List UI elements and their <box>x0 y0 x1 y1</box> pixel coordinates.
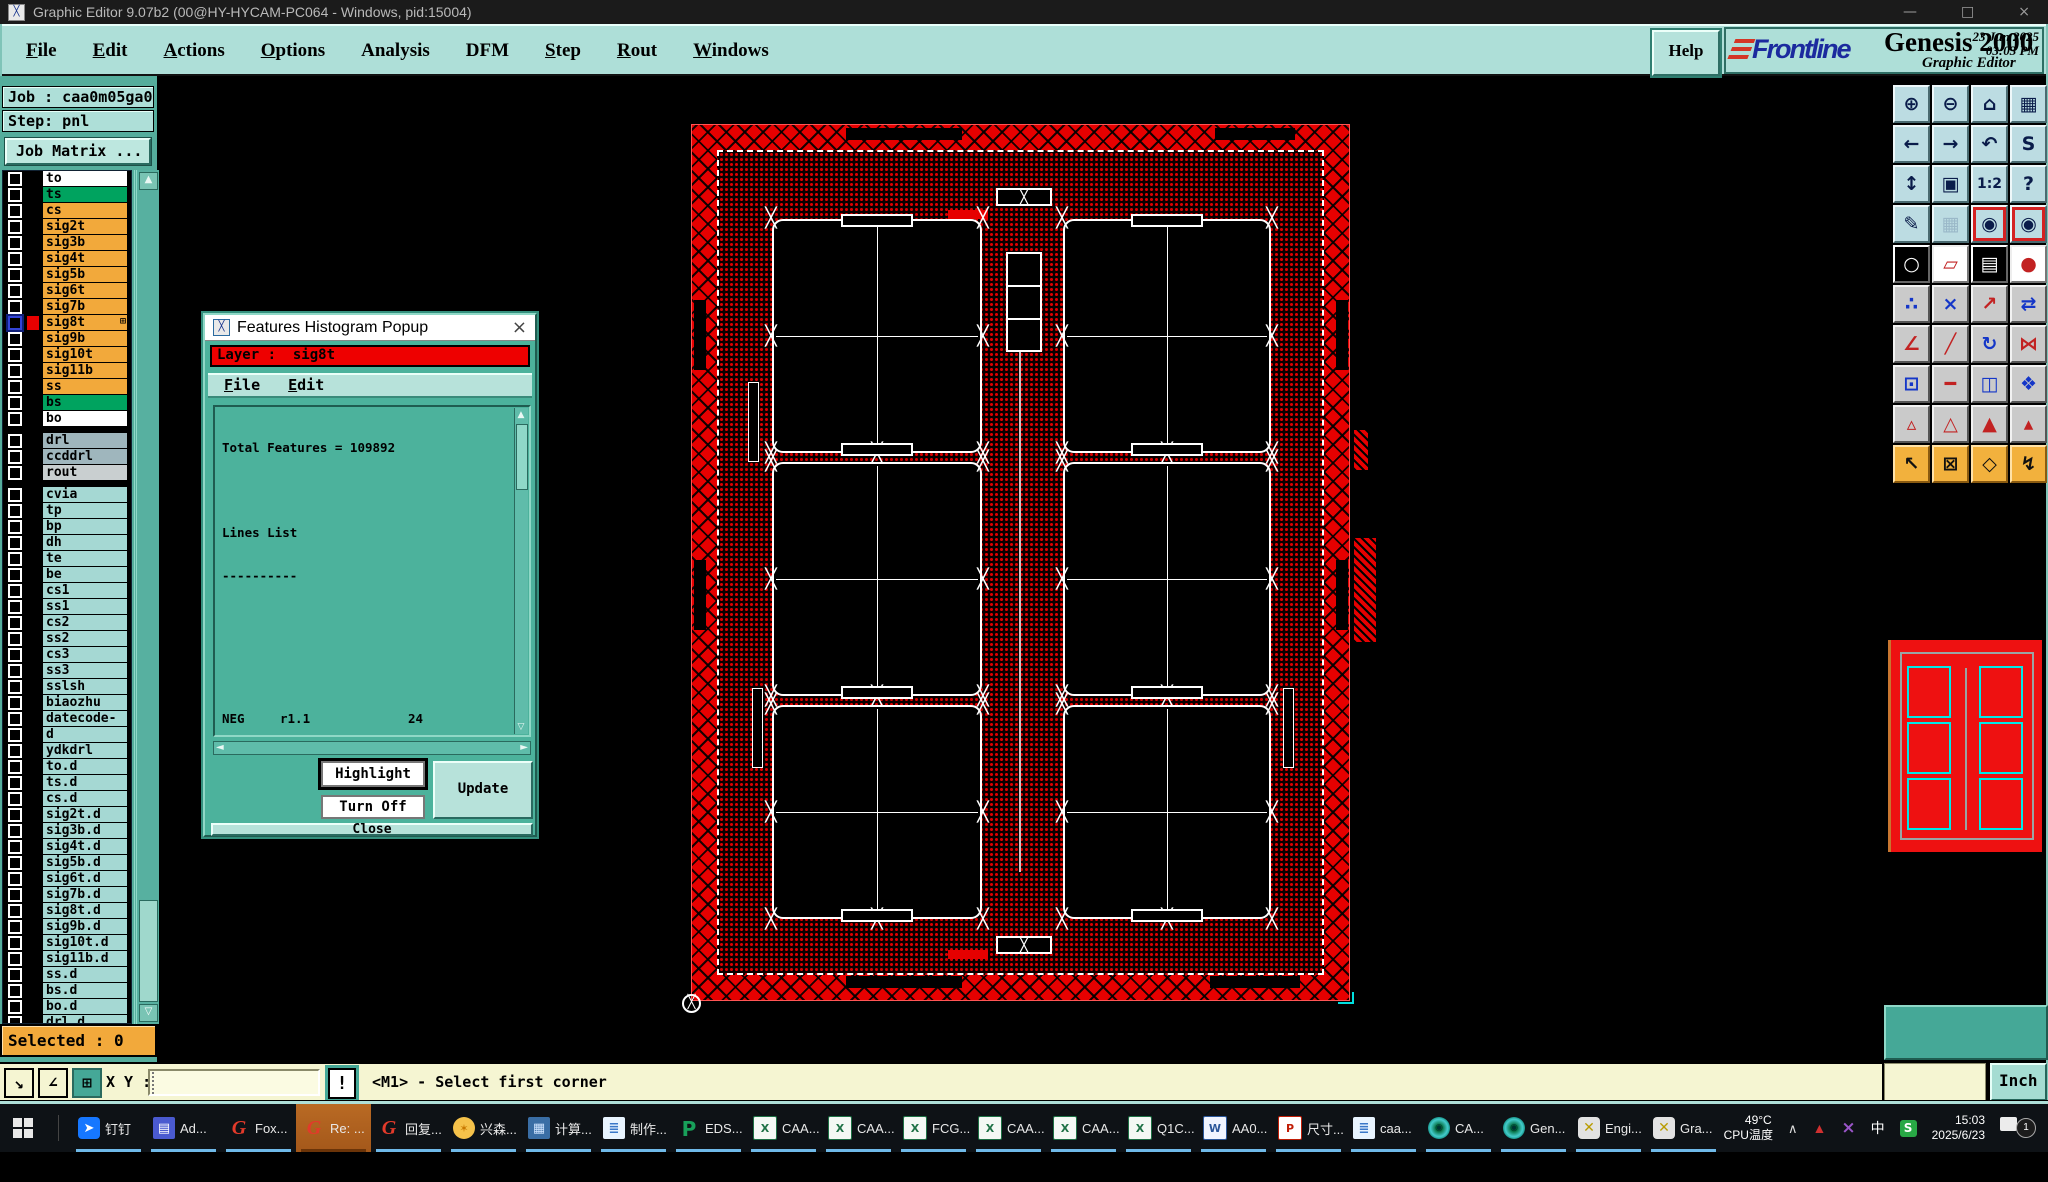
layer-row[interactable]: d <box>3 727 131 742</box>
taskbar-item-label: Gen... <box>1530 1121 1565 1136</box>
select-arrow-button[interactable]: ↖ <box>1893 445 1930 483</box>
layer-name[interactable]: ts.d <box>43 775 127 790</box>
taskbar-item-engineering[interactable]: ✕ Engi... <box>1571 1104 1646 1152</box>
layer-name[interactable]: sig2t.d <box>43 807 127 822</box>
layer-name[interactable]: sig2t <box>43 219 127 234</box>
layer-color-swatch <box>27 504 39 518</box>
grid-toggle-button[interactable]: ▦ <box>1932 205 1969 243</box>
taskbar-item-label: 回复... <box>405 1119 442 1138</box>
layer-visibility-checkbox[interactable] <box>8 648 22 662</box>
copy-shape-button[interactable]: ⊡ <box>1893 365 1930 403</box>
layer-name[interactable]: ss <box>43 379 127 394</box>
panel-block-group[interactable]: ╳╳╳╳╳╳╳ <box>1063 219 1271 453</box>
origin-target-marker: ╳ <box>682 994 701 1013</box>
layer-name[interactable]: bs <box>43 395 127 410</box>
layer-row[interactable]: ss2 <box>3 631 131 646</box>
layer-name[interactable]: sig9b.d <box>43 919 127 934</box>
taskbar-item-graphic-editor[interactable]: ✕ Gra... <box>1646 1104 1721 1152</box>
layer-row[interactable]: sig2t <box>3 219 131 234</box>
taskbar-item-chicun-pdf[interactable]: P 尺寸... <box>1271 1104 1346 1152</box>
layer-row[interactable]: sig9b <box>3 331 131 346</box>
layer-visibility-checkbox[interactable] <box>8 888 22 902</box>
layer-row[interactable]: rout <box>3 465 131 480</box>
layer-name[interactable]: ss2 <box>43 631 127 646</box>
layer-name[interactable]: drl <box>43 433 127 448</box>
layer-name[interactable]: sig11b <box>43 363 127 378</box>
layer-row[interactable]: sig10t <box>3 347 131 362</box>
layer-visibility-checkbox[interactable] <box>8 1016 22 1025</box>
layer-row[interactable]: cs2 <box>3 615 131 630</box>
layer-visibility-checkbox[interactable] <box>8 920 22 934</box>
layer-row[interactable]: bs.d <box>3 983 131 998</box>
layer-name[interactable]: sig3b.d <box>43 823 127 838</box>
layer-visibility-checkbox[interactable] <box>8 568 22 582</box>
tools-palette-button[interactable]: ✎ <box>1893 205 1930 243</box>
status-bar: ↘ ∠ ⊞ X Y : ! <M1> - Select first corner <box>0 1062 1882 1102</box>
point-swap-button[interactable]: ⇄ <box>2010 285 2047 323</box>
zoom-in-button[interactable]: ⊕ <box>1893 85 1930 123</box>
layer-visibility-checkbox[interactable] <box>8 792 22 806</box>
layer-color-swatch <box>27 968 39 982</box>
ime-indicator[interactable]: 中 <box>1871 1121 1885 1136</box>
clear-marks-button[interactable]: × <box>1932 285 1969 323</box>
layer-color-swatch <box>27 664 39 678</box>
taskbar-item-q1c-xls[interactable]: X Q1C... <box>1121 1104 1196 1152</box>
layer-row[interactable]: sig4t.d <box>3 839 131 854</box>
layer-row[interactable]: sig11b.d <box>3 951 131 966</box>
layer-row[interactable]: sig5b.d <box>3 855 131 870</box>
pan-right-button[interactable]: → <box>1932 125 1969 163</box>
layer-name[interactable]: to <box>43 171 127 186</box>
select-window-button[interactable]: ⊠ <box>1932 445 1969 483</box>
taskbar-item-label: caa... <box>1380 1121 1412 1136</box>
overview-center-line <box>1965 668 1967 830</box>
dimension-button[interactable]: ◫ <box>1971 365 2008 403</box>
layer-name[interactable]: sig4t.d <box>43 839 127 854</box>
layer-visibility-checkbox[interactable] <box>8 380 22 394</box>
layer-name[interactable]: ydkdrl <box>43 743 127 758</box>
taskbar-clock[interactable]: 15:032025/6/23 <box>1932 1098 1985 1158</box>
taskbar-item-aa0-doc[interactable]: W AA0... <box>1196 1104 1271 1152</box>
taskbar-item-xingsen[interactable]: ✶ 兴森... <box>446 1104 521 1152</box>
layer-row[interactable]: cs.d <box>3 791 131 806</box>
layer-visibility-checkbox[interactable] <box>8 600 22 614</box>
select-net-button[interactable]: ↯ <box>2010 445 2047 483</box>
triangle-outline-button[interactable]: △ <box>1932 405 1969 443</box>
corner-tick <box>1338 992 1354 1004</box>
pan-left-button[interactable]: ← <box>1893 125 1930 163</box>
layer-sidebar: Job : caa0m05ga0 Step: pnl Job Matrix ..… <box>0 76 158 1064</box>
layer-name[interactable]: to.d <box>43 759 127 774</box>
layer-row[interactable]: ydkdrl <box>3 743 131 758</box>
layer-row[interactable]: cs3 <box>3 647 131 662</box>
layer-row[interactable]: cvia <box>3 487 131 502</box>
panel-block-group[interactable]: ╳╳╳╳╳╳╳ <box>772 462 982 696</box>
layer-row[interactable]: be <box>3 567 131 582</box>
window-xy-button[interactable]: ▦ <box>2010 85 2047 123</box>
taskbar-item-zhizuo[interactable]: ≣ 制作... <box>596 1104 671 1152</box>
layer-visibility-checkbox[interactable] <box>8 904 22 918</box>
overview-map[interactable] <box>1888 640 2042 852</box>
taskbar-items: ➤ 钉钉 ▤ Ad... G Fox... G Re: ... G 回复... <box>71 1104 1721 1152</box>
layer-name[interactable]: cs <box>43 203 127 218</box>
layer-name[interactable]: ss.d <box>43 967 127 982</box>
triangle-filled-button[interactable]: ▲ <box>1971 405 2008 443</box>
histogram-row[interactable]: NEG r1.1 24 <box>222 712 511 726</box>
home-view-button[interactable]: ⌂ <box>1971 85 2008 123</box>
scroll-up-icon[interactable]: ▲ <box>515 408 527 422</box>
layer-visibility-checkbox[interactable] <box>8 760 22 774</box>
segment-button[interactable]: ━ <box>1932 365 1969 403</box>
layer-row[interactable]: drl <box>3 433 131 448</box>
layer-name[interactable]: te <box>43 551 127 566</box>
layer-visibility-checkbox[interactable] <box>8 268 22 282</box>
taskbar-item-label: 计算... <box>555 1119 592 1138</box>
layer-row[interactable]: bs <box>3 395 131 410</box>
layer-row[interactable]: ss3 <box>3 663 131 678</box>
layer-row[interactable]: sig4t <box>3 251 131 266</box>
layer-visibility-checkbox[interactable] <box>8 284 22 298</box>
layer-row[interactable]: sig11b <box>3 363 131 378</box>
notification-center[interactable]: 1 <box>2000 1115 2036 1141</box>
triangle-up-small-button[interactable]: ▵ <box>1893 405 1930 443</box>
overview-block <box>1979 666 2023 718</box>
layer-name[interactable]: sig7b.d <box>43 887 127 902</box>
layer-visibility-checkbox[interactable] <box>8 584 22 598</box>
layer-row[interactable]: bo <box>3 411 131 426</box>
rotate-arc-button[interactable]: ↻ <box>1971 325 2008 363</box>
layer-name[interactable]: ss3 <box>43 663 127 678</box>
taskbar-item-caa-xls-4[interactable]: X CAA... <box>1046 1104 1121 1152</box>
layer-row[interactable]: sig8t <box>3 315 131 330</box>
dialog-menu-item[interactable]: File <box>224 375 260 396</box>
layer-name[interactable]: sig8t.d <box>43 903 127 918</box>
layer-visibility-checkbox[interactable] <box>8 712 22 726</box>
layer-name[interactable]: sig3b <box>43 235 127 250</box>
unit-dropdown[interactable]: Inch <box>1990 1063 2047 1101</box>
layer-visibility-checkbox[interactable] <box>8 236 22 250</box>
layer-visibility-checkbox[interactable] <box>8 220 22 234</box>
layer-name[interactable]: ts <box>43 187 127 202</box>
layer-name[interactable]: sig6t <box>43 283 127 298</box>
taskbar-item-genesis-cd[interactable]: ◉ Gen... <box>1496 1104 1571 1152</box>
layer-color-swatch <box>27 680 39 694</box>
layer-name[interactable]: sig11b.d <box>43 951 127 966</box>
scroll-down-icon[interactable]: ▽ <box>139 1004 158 1022</box>
taskbar-item-ad[interactable]: ▤ Ad... <box>146 1104 221 1152</box>
taskbar-item-dingtalk[interactable]: ➤ 钉钉 <box>71 1104 146 1152</box>
taskbar-item-foxmail[interactable]: G Fox... <box>221 1104 296 1152</box>
layer-name[interactable]: cs3 <box>43 647 127 662</box>
layer-visibility-checkbox[interactable] <box>8 204 22 218</box>
polyline-edit-button[interactable]: ▱ <box>1932 245 1969 283</box>
dialog-vertical-scrollbar[interactable]: ▲ ▽ <box>514 408 528 734</box>
grid-snap-button[interactable]: ⊞ <box>72 1068 102 1098</box>
layer-row[interactable]: ss.d <box>3 967 131 982</box>
tray-s-icon[interactable]: S <box>1900 1120 1917 1137</box>
cpu-temperature: 49°CCPU温度 <box>1724 1098 1773 1158</box>
layer-visibility-checkbox[interactable] <box>8 952 22 966</box>
layer-row[interactable]: drl.d <box>3 1015 131 1024</box>
layer-visibility-checkbox[interactable] <box>8 332 22 346</box>
layer-visibility-checkbox[interactable] <box>8 364 22 378</box>
layer-row[interactable]: sslsh <box>3 679 131 694</box>
layer-visibility-checkbox[interactable] <box>8 664 22 678</box>
layer-name[interactable]: sig5b <box>43 267 127 282</box>
layer-visibility-checkbox[interactable] <box>8 872 22 886</box>
taskbar-item-ca-cd[interactable]: ◉ CA... <box>1421 1104 1496 1152</box>
layer-name[interactable]: sslsh <box>43 679 127 694</box>
layer-name[interactable]: sig9b <box>43 331 127 346</box>
panel-block-group[interactable]: ╳╳╳╳╳╳╳ <box>772 219 982 453</box>
layer-name[interactable]: bo.d <box>43 999 127 1014</box>
layer-color-swatch <box>27 488 39 502</box>
layer-visibility-checkbox[interactable] <box>8 396 22 410</box>
layer-row[interactable]: sig6t <box>3 283 131 298</box>
layer-visibility-checkbox[interactable] <box>8 316 22 330</box>
layer-visibility-checkbox[interactable] <box>8 412 22 426</box>
layer-row[interactable]: sig3b <box>3 235 131 250</box>
layer-row[interactable]: ts <box>3 187 131 202</box>
taskbar-item-caa-note[interactable]: ≣ caa... <box>1346 1104 1421 1152</box>
layer-row[interactable]: sig3b.d <box>3 823 131 838</box>
histogram-content: Total Features = 109892 Lines List -----… <box>222 412 511 733</box>
layer-name[interactable]: sig6t.d <box>43 871 127 886</box>
layer-name[interactable]: bo <box>43 411 127 426</box>
overview-block <box>1907 722 1951 774</box>
layer-visibility-checkbox[interactable] <box>8 450 22 464</box>
dialog-menu-item[interactable]: Edit <box>288 375 324 396</box>
layer-row[interactable]: bp <box>3 519 131 534</box>
panel-block-group[interactable]: ╳╳╳╳╳╳╳ <box>772 705 982 919</box>
layer-visibility-checkbox[interactable] <box>8 504 22 518</box>
layer-visibility-checkbox[interactable] <box>8 824 22 838</box>
layer-row[interactable]: sig7b <box>3 299 131 314</box>
dialog-menubar: File Edit <box>208 373 532 398</box>
zoom-out-button[interactable]: ⊖ <box>1932 85 1969 123</box>
panel-block-group[interactable]: ╳╳╳╳╳╳╳ <box>1063 705 1271 919</box>
point-link-button[interactable]: ↗ <box>1971 285 2008 323</box>
layer-name[interactable]: cs1 <box>43 583 127 598</box>
layer-visibility-checkbox[interactable] <box>8 728 22 742</box>
layer-name[interactable]: sig7b <box>43 299 127 314</box>
layer-visibility-checkbox[interactable] <box>8 696 22 710</box>
app-icon: ◉ <box>1428 1117 1450 1139</box>
turn-off-button[interactable]: Turn Off <box>321 795 425 819</box>
slope-line-button[interactable]: ╱ <box>1932 325 1969 363</box>
tray-x-icon[interactable]: × <box>1841 1118 1855 1138</box>
tray-triangle-icon[interactable]: ▲ <box>1813 1121 1827 1136</box>
close-button[interactable]: Close <box>211 823 533 836</box>
layer-row[interactable]: sig2t.d <box>3 807 131 822</box>
total-features-line: Total Features = 109892 <box>222 441 511 455</box>
layer-name[interactable]: bp <box>43 519 127 534</box>
expand-view-button[interactable]: ↕ <box>1893 165 1930 203</box>
triangle-marked-button[interactable]: ▴ <box>2010 405 2047 443</box>
layer-row[interactable]: sig6t.d <box>3 871 131 886</box>
taskbar-item-caa-xls-2[interactable]: X CAA... <box>821 1104 896 1152</box>
right-toolbar: ⊕ ⊖ ⌂ ▦ ← → ↶ S ↕ ▣ 1:2 ? ✎ ▦ ◉ ◉ ○ ▱ ▤ … <box>1892 84 2048 484</box>
layer-visibility-checkbox[interactable] <box>8 520 22 534</box>
layer-visibility-checkbox[interactable] <box>8 840 22 854</box>
layer-visibility-checkbox[interactable] <box>8 466 22 480</box>
app-icon: X <box>903 1116 927 1140</box>
angle-measure-button[interactable]: ∠ <box>1893 325 1930 363</box>
layer-row[interactable]: sig8t.d <box>3 903 131 918</box>
scrollbar-thumb[interactable] <box>139 900 158 1002</box>
layer-name[interactable]: be <box>43 567 127 582</box>
query-zoom-button[interactable]: ? <box>2010 165 2047 203</box>
input-caret <box>152 1072 155 1094</box>
layer-row[interactable]: tp <box>3 503 131 518</box>
dialog-close-icon[interactable]: × <box>512 317 527 338</box>
layer-row[interactable]: cs1 <box>3 583 131 598</box>
select-polygon-button[interactable]: ◇ <box>1971 445 2008 483</box>
previous-view-button[interactable]: ↶ <box>1971 125 2008 163</box>
layer-visibility-checkbox[interactable] <box>8 434 22 448</box>
layer-row[interactable]: biaozhu <box>3 695 131 710</box>
taskbar-item-reply-mail[interactable]: G 回复... <box>371 1104 446 1152</box>
net-highlight-button[interactable]: ◉ <box>1971 205 2008 243</box>
job-matrix-button[interactable]: Job Matrix ... <box>5 138 151 165</box>
taskbar-item-fcg-xls[interactable]: X FCG... <box>896 1104 971 1152</box>
layer-visibility-checkbox[interactable] <box>8 616 22 630</box>
app-icon: G <box>303 1117 325 1139</box>
layer-visibility-checkbox[interactable] <box>8 776 22 790</box>
highlight-button[interactable]: Highlight <box>321 761 425 787</box>
layer-visibility-checkbox[interactable] <box>8 188 22 202</box>
layer-visibility-checkbox[interactable] <box>8 680 22 694</box>
taskbar-item-caa-xls-3[interactable]: X CAA... <box>971 1104 1046 1152</box>
layer-list-scrollbar[interactable]: ▲ ▽ <box>134 170 159 1024</box>
taskbar-item-calculator[interactable]: ▦ 计算... <box>521 1104 596 1152</box>
layer-visibility-checkbox[interactable] <box>8 808 22 822</box>
layer-row[interactable]: ss1 <box>3 599 131 614</box>
symbol-cell[interactable]: r1.1 <box>280 712 408 726</box>
start-button[interactable] <box>0 1104 46 1152</box>
layer-visibility-checkbox[interactable] <box>8 552 22 566</box>
layer-row[interactable]: dh <box>3 535 131 550</box>
layer-name[interactable]: ss1 <box>43 599 127 614</box>
taskbar-item-caa-xls-1[interactable]: X CAA... <box>746 1104 821 1152</box>
layer-name[interactable]: d <box>43 727 127 742</box>
layer-visibility-checkbox[interactable] <box>8 536 22 550</box>
alert-button[interactable]: ! <box>328 1068 356 1099</box>
layer-visibility-checkbox[interactable] <box>8 744 22 758</box>
layer-visibility-checkbox[interactable] <box>8 488 22 502</box>
layer-row[interactable]: sig7b.d <box>3 887 131 902</box>
layer-row[interactable]: sig5b <box>3 267 131 282</box>
layer-row[interactable]: ccddrl <box>3 449 131 464</box>
zoom-ratio-button[interactable]: 1:2 <box>1971 165 2008 203</box>
layer-name[interactable]: sig10t.d <box>43 935 127 950</box>
mirror-button[interactable]: ⋈ <box>2010 325 2047 363</box>
pad-copy-button[interactable]: ○ <box>1893 245 1930 283</box>
layer-visibility-checkbox[interactable] <box>8 348 22 362</box>
layer-name[interactable]: sig8t <box>43 315 127 330</box>
layer-color-swatch <box>27 840 39 854</box>
layer-name[interactable]: ccddrl <box>43 449 127 464</box>
app-icon: ✶ <box>453 1117 475 1139</box>
layer-row[interactable]: te <box>3 551 131 566</box>
layer-name[interactable]: dh <box>43 535 127 550</box>
serpentine-scan-button[interactable]: S <box>2010 125 2047 163</box>
layer-color-swatch <box>27 204 39 218</box>
features-histogram-dialog[interactable]: ╳ Features Histogram Popup × Layer : sig… <box>203 313 537 837</box>
layer-row[interactable]: cs <box>3 203 131 218</box>
tray-expand-icon[interactable]: ∧ <box>1788 1121 1798 1136</box>
layer-name[interactable]: cs.d <box>43 791 127 806</box>
layer-name[interactable]: biaozhu <box>43 695 127 710</box>
layer-color-swatch <box>27 396 39 410</box>
histogram-list-panel[interactable]: Total Features = 109892 Lines List -----… <box>213 405 531 737</box>
layer-visibility-checkbox[interactable] <box>8 856 22 870</box>
cursor-coordinates: X = 2.297409" Y = 7.732228" <box>1884 1005 2048 1060</box>
net-points-button[interactable]: ∴ <box>1893 285 1930 323</box>
layer-row[interactable]: sig9b.d <box>3 919 131 934</box>
layer-name[interactable]: cvia <box>43 487 127 502</box>
scroll-right-icon[interactable]: ► <box>520 742 528 754</box>
layer-name[interactable]: bs.d <box>43 983 127 998</box>
layer-visibility-checkbox[interactable] <box>8 968 22 982</box>
layer-row[interactable]: sig10t.d <box>3 935 131 950</box>
layer-visibility-checkbox[interactable] <box>8 632 22 646</box>
layer-visibility-checkbox[interactable] <box>8 252 22 266</box>
layer-color-swatch <box>27 332 39 346</box>
layer-row[interactable]: to <box>3 171 131 186</box>
layer-name[interactable]: drl.d <box>43 1015 127 1024</box>
fit-view-button[interactable]: ▣ <box>1932 165 1969 203</box>
layer-row[interactable]: datecode-bo <box>3 711 131 726</box>
layer-visibility-checkbox[interactable] <box>8 936 22 950</box>
xy-input[interactable] <box>148 1069 320 1096</box>
net-highlight-alt-button[interactable]: ◉ <box>2010 205 2047 243</box>
scroll-down-icon[interactable]: ▽ <box>515 720 527 734</box>
layer-name[interactable]: datecode-bo <box>43 711 127 726</box>
layer-row[interactable]: ss <box>3 379 131 394</box>
pads-cluster-button[interactable]: ❖ <box>2010 365 2047 403</box>
ruler-button[interactable]: ▤ <box>1971 245 2008 283</box>
layer-row[interactable]: bo.d <box>3 999 131 1014</box>
pad-dashed-button[interactable]: ● <box>2010 245 2047 283</box>
layer-name[interactable]: sig4t <box>43 251 127 266</box>
layer-visibility-checkbox[interactable] <box>8 300 22 314</box>
scroll-left-icon[interactable]: ◄ <box>216 742 224 754</box>
taskbar-item-eds[interactable]: P EDS... <box>671 1104 746 1152</box>
scrollbar-thumb[interactable] <box>516 424 528 490</box>
layer-visibility-checkbox[interactable] <box>8 1000 22 1014</box>
scroll-up-icon[interactable]: ▲ <box>139 172 158 190</box>
taskbar-item-re-mail[interactable]: G Re: ... <box>296 1104 371 1152</box>
panel-block-group[interactable]: ╳╳╳╳╳╳╳ <box>1063 462 1271 696</box>
layer-visibility-checkbox[interactable] <box>8 984 22 998</box>
dialog-titlebar[interactable]: ╳ Features Histogram Popup × <box>205 315 535 341</box>
update-button[interactable]: Update <box>433 761 533 819</box>
layer-name[interactable]: sig10t <box>43 347 127 362</box>
layer-name[interactable]: sig5b.d <box>43 855 127 870</box>
snap-mode-button[interactable]: ↘ <box>4 1068 34 1098</box>
layer-name[interactable]: rout <box>43 465 127 480</box>
layer-color-swatch <box>27 584 39 598</box>
layer-row[interactable]: ts.d <box>3 775 131 790</box>
windows-taskbar: ➤ 钉钉 ▤ Ad... G Fox... G Re: ... G 回复... <box>0 1104 2048 1152</box>
dialog-horizontal-scrollbar[interactable]: ◄ ► <box>213 741 531 755</box>
layer-row[interactable]: to.d <box>3 759 131 774</box>
layer-name[interactable]: tp <box>43 503 127 518</box>
angle-mode-button[interactable]: ∠ <box>38 1068 68 1098</box>
layer-visibility-checkbox[interactable] <box>8 172 22 186</box>
layer-name[interactable]: cs2 <box>43 615 127 630</box>
